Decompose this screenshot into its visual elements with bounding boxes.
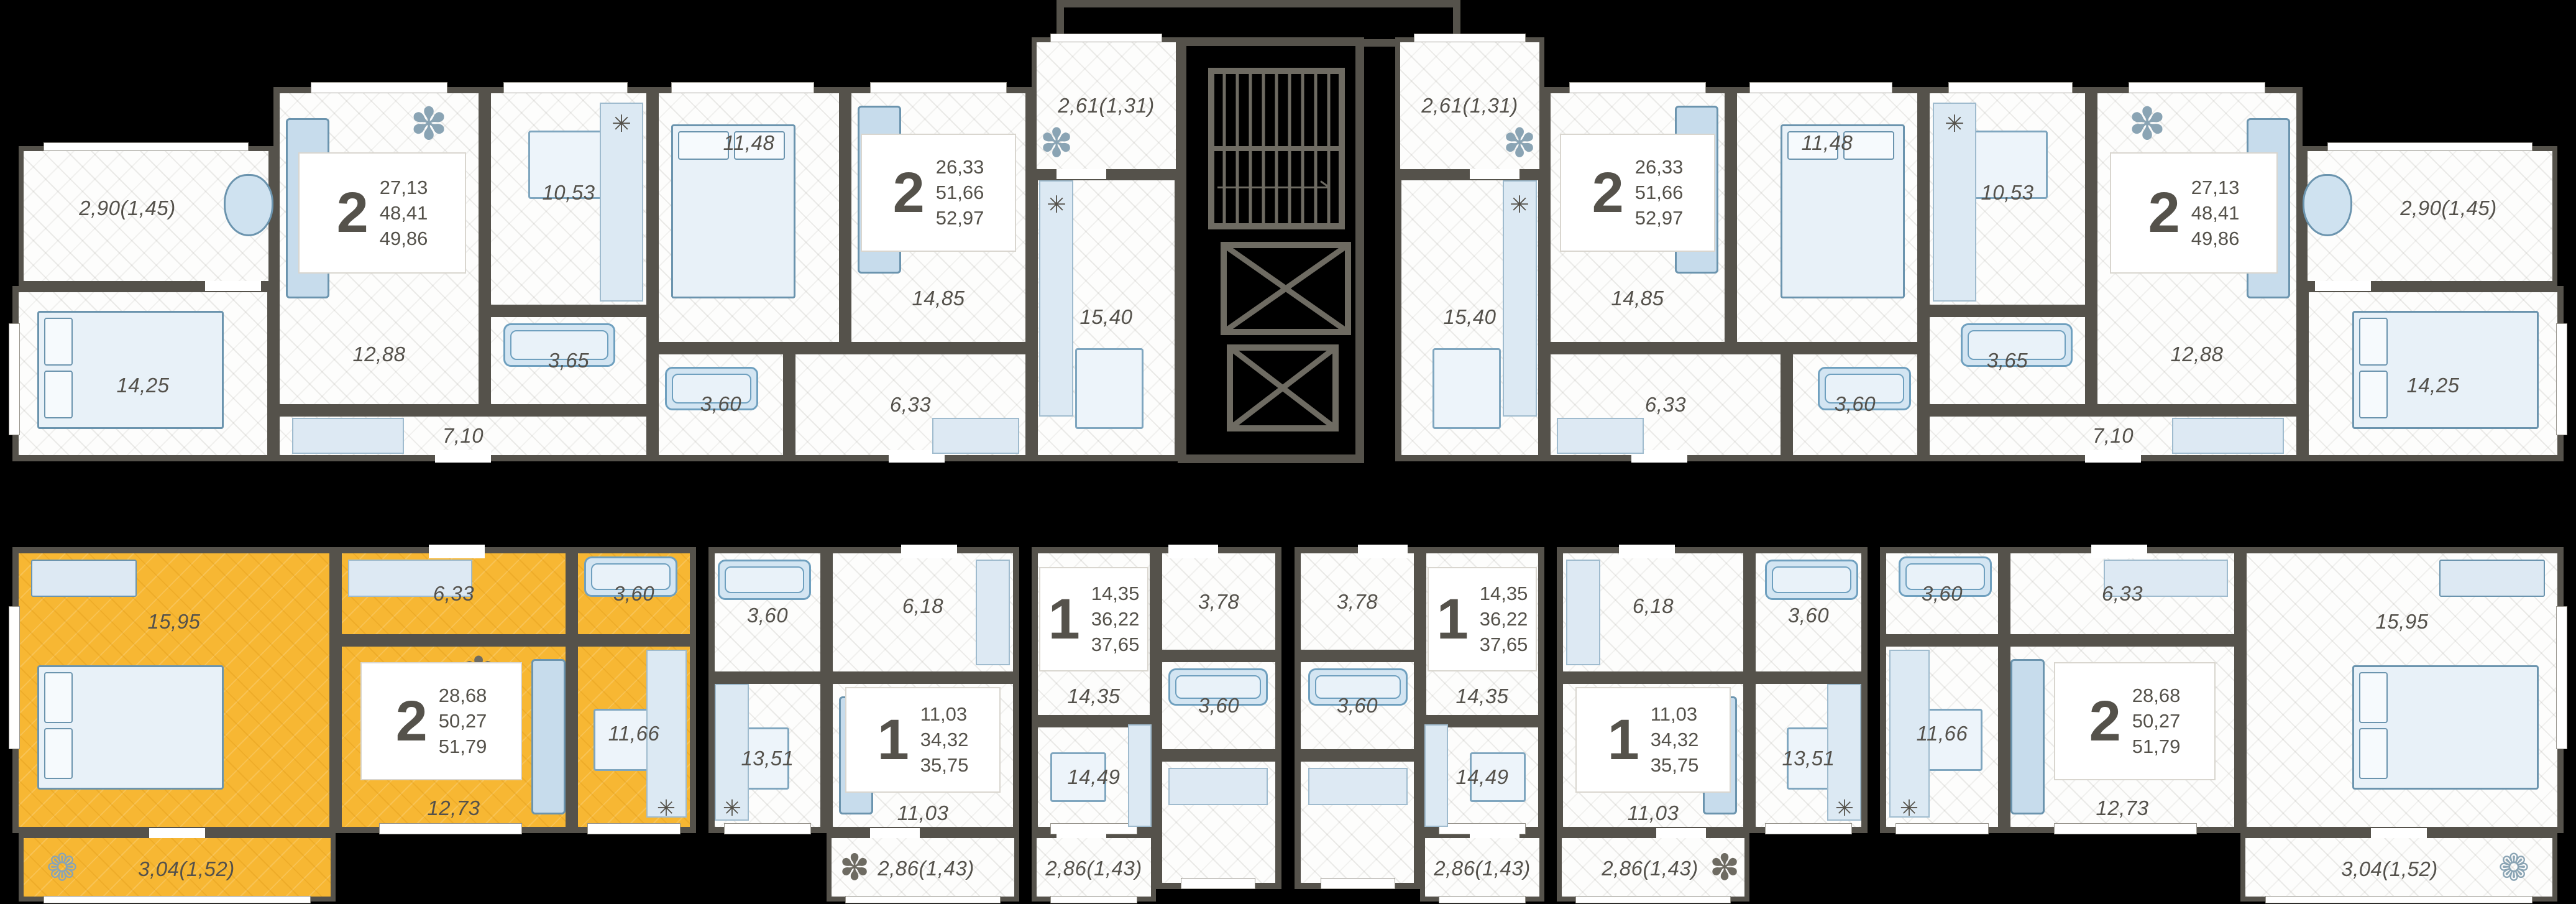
unit-area-value: 26,33 xyxy=(936,156,984,178)
plant-icon: ✽ xyxy=(1710,850,1740,886)
fridge-icon: ✳ xyxy=(657,797,676,819)
room-area-label: 2,90(1,45) xyxy=(79,196,175,220)
door-opening[interactable] xyxy=(435,450,491,463)
room-area-label: 6,18 xyxy=(902,594,943,618)
door-opening[interactable] xyxy=(1057,169,1106,179)
unit-rooms-count: 2 xyxy=(2089,697,2121,745)
unit-area-value: 34,32 xyxy=(1651,729,1699,751)
unit-area-value: 52,97 xyxy=(936,207,984,229)
window xyxy=(2556,323,2567,435)
ward-furniture xyxy=(976,560,1010,665)
chair-furniture xyxy=(224,174,273,236)
unit-area-value: 35,75 xyxy=(920,754,969,777)
core-drawing xyxy=(1186,46,1373,472)
unit-area-value: 28,68 xyxy=(439,685,487,707)
room-area-label: 7,10 xyxy=(2092,424,2134,448)
sofa-furniture xyxy=(2010,659,2045,814)
unit-rooms-count: 1 xyxy=(878,716,909,764)
unit-info-box: 111,0334,3235,75 xyxy=(1575,687,1731,793)
unit-info-box: 226,3351,6652,97 xyxy=(861,134,1016,252)
room-area-label: 3,78 xyxy=(1337,590,1378,614)
window xyxy=(379,823,522,834)
table-furniture xyxy=(1075,348,1144,429)
unit-info-box: 226,3351,6652,97 xyxy=(1560,134,1715,252)
window xyxy=(1569,82,1706,93)
unit-area-value: 52,97 xyxy=(1635,207,1684,229)
room-area-label: 11,03 xyxy=(1628,801,1679,825)
window xyxy=(1321,878,1395,889)
room-area-label: 12,73 xyxy=(427,796,480,820)
window xyxy=(1765,823,1852,834)
unit-area-value: 48,41 xyxy=(380,202,428,224)
room-area-label: 14,25 xyxy=(2406,374,2459,397)
unit-area-value: 51,79 xyxy=(439,736,487,758)
tub-furniture xyxy=(718,560,811,600)
door-opening[interactable] xyxy=(2085,450,2141,463)
unit-info-box: 114,3536,2237,65 xyxy=(1039,567,1148,671)
room-area-label: 2,61(1,31) xyxy=(1421,94,1518,118)
room-area-label: 11,66 xyxy=(1917,722,1968,745)
ward-furniture xyxy=(2172,418,2284,454)
room-area-label: 15,40 xyxy=(1079,305,1132,329)
room-area-label: 11,03 xyxy=(897,801,949,825)
vase-icon: ❁ xyxy=(2498,849,2529,887)
unit-area-value: 27,13 xyxy=(2191,177,2240,199)
window xyxy=(9,323,20,435)
window xyxy=(2556,606,2567,749)
room-area-label: 6,18 xyxy=(1633,594,1674,618)
unit-area-value: 51,79 xyxy=(2132,736,2181,758)
room-area-label: 13,51 xyxy=(741,747,794,770)
desk-furniture xyxy=(2439,560,2545,597)
room-area-label: 3,04(1,52) xyxy=(138,857,234,881)
window xyxy=(870,82,1007,93)
fridge-icon: ✳ xyxy=(1900,797,1918,819)
plant-icon: ✽ xyxy=(2129,102,2166,147)
room-area-label: 3,78 xyxy=(1198,590,1239,614)
unit-area-value: 28,68 xyxy=(2132,685,2181,707)
tub-furniture xyxy=(1765,560,1858,600)
room-area-label: 12,88 xyxy=(2170,343,2223,366)
room-area-label: 12,73 xyxy=(2096,796,2148,820)
door-opening[interactable] xyxy=(2371,828,2427,838)
unit-info-box: 227,1348,4149,86 xyxy=(298,152,466,274)
fridge-icon: ✳ xyxy=(1835,797,1854,819)
room-area-label: 11,66 xyxy=(608,722,660,745)
door-opening[interactable] xyxy=(1470,828,1519,838)
unit-area-value: 49,86 xyxy=(2191,228,2240,250)
window xyxy=(1181,878,1255,889)
room-area-label: 3,65 xyxy=(548,349,589,372)
window xyxy=(44,142,249,151)
unit-areas: 11,0334,3235,75 xyxy=(920,703,969,777)
room-area-label: 14,85 xyxy=(1611,287,1664,310)
door-opening[interactable] xyxy=(870,828,920,838)
unit-area-value: 26,33 xyxy=(1635,156,1684,178)
room-area-label: 2,86(1,43) xyxy=(1045,857,1142,880)
unit-areas: 11,0334,3235,75 xyxy=(1651,703,1699,777)
unit-area-value: 51,66 xyxy=(936,182,984,204)
door-opening[interactable] xyxy=(1358,545,1408,558)
door-opening[interactable] xyxy=(1057,828,1106,838)
door-opening[interactable] xyxy=(901,545,957,558)
unit-areas: 28,6850,2751,79 xyxy=(2132,685,2181,758)
door-opening[interactable] xyxy=(1619,545,1675,558)
plant-icon: ✽ xyxy=(840,850,870,886)
room-area-label: 3,60 xyxy=(613,582,654,606)
sofa-furniture xyxy=(531,659,566,814)
room-area-label: 3,60 xyxy=(747,604,788,627)
unit-rooms-count: 2 xyxy=(1592,168,1624,217)
window xyxy=(2327,142,2532,151)
desk-furniture xyxy=(31,560,137,597)
room-area-label: 15,95 xyxy=(147,610,200,634)
ward-furniture xyxy=(1557,418,1644,454)
room-area-label: 10,53 xyxy=(542,181,595,205)
room-area-label: 14,35 xyxy=(1067,685,1120,708)
room-area-label: 3,60 xyxy=(1198,694,1239,717)
room-area-label: 3,60 xyxy=(700,392,741,416)
room-area-label: 12,88 xyxy=(352,343,405,366)
door-opening[interactable] xyxy=(429,545,485,558)
window xyxy=(1749,82,1892,93)
unit-areas: 14,3536,2237,65 xyxy=(1480,583,1528,656)
window xyxy=(1050,34,1162,42)
unit-rooms-count: 1 xyxy=(1608,716,1639,764)
unit-area-value: 36,22 xyxy=(1091,608,1140,630)
room-area-label: 3,60 xyxy=(1337,694,1378,717)
vase-icon: ❁ xyxy=(47,849,78,887)
ward-furniture xyxy=(1168,768,1268,805)
door-opening[interactable] xyxy=(2315,281,2371,291)
bed-furniture xyxy=(2352,311,2539,429)
unit-areas: 26,3351,6652,97 xyxy=(1635,156,1684,229)
ward-furniture xyxy=(932,418,1019,454)
bed-furniture xyxy=(2352,665,2539,790)
room-area-label: 11,48 xyxy=(1802,131,1853,155)
room-area-label: 13,51 xyxy=(1782,747,1835,770)
unit-area-value: 51,66 xyxy=(1635,182,1684,204)
room-area-label: 3,60 xyxy=(1788,604,1829,627)
window xyxy=(587,823,681,834)
door-opening[interactable] xyxy=(1656,828,1706,838)
counter-furniture xyxy=(1128,724,1152,827)
room-area-label: 2,86(1,43) xyxy=(1434,857,1530,880)
door-opening[interactable] xyxy=(1470,169,1519,179)
room-area-label: 6,33 xyxy=(890,393,931,417)
fridge-icon: ✳ xyxy=(612,113,631,136)
window xyxy=(671,82,814,93)
window xyxy=(1414,34,1526,42)
floor-plan-canvas: ✽✽✽✽✽✽✽❁❁✳✳✳✳✳✳✳✳ 2,90(1,45)14,2512,8810… xyxy=(0,0,2576,904)
fridge-icon: ✳ xyxy=(1945,113,1964,136)
room-area-label: 14,25 xyxy=(116,374,169,397)
unit-info-box: 111,0334,3235,75 xyxy=(845,687,1001,793)
ward-furniture xyxy=(292,418,404,454)
unit-area-value: 36,22 xyxy=(1480,608,1528,630)
unit-areas: 26,3351,6652,97 xyxy=(936,156,984,229)
unit-area-value: 50,27 xyxy=(439,710,487,732)
room-area-label: 14,49 xyxy=(1455,765,1508,789)
stair-elevator-core xyxy=(1178,37,1364,463)
window xyxy=(2054,823,2197,834)
window xyxy=(724,823,811,834)
room-area-label: 6,33 xyxy=(433,582,474,606)
window xyxy=(845,896,1001,903)
window xyxy=(1948,82,2073,93)
room-area-label: 2,86(1,43) xyxy=(878,857,974,880)
ward-furniture xyxy=(1308,768,1408,805)
unit-area-value: 50,27 xyxy=(2132,710,2181,732)
unit-area-value: 35,75 xyxy=(1651,754,1699,777)
room-area-label: 2,90(1,45) xyxy=(2400,196,2496,220)
window xyxy=(2129,82,2265,93)
room-area-label: 15,40 xyxy=(1443,305,1496,329)
unit-rooms-count: 1 xyxy=(1048,595,1080,643)
unit-area-value: 49,86 xyxy=(380,228,428,250)
window xyxy=(44,896,311,903)
unit-area-value: 37,65 xyxy=(1091,634,1140,656)
unit-areas: 27,1348,4149,86 xyxy=(380,177,428,250)
unit-rooms-count: 2 xyxy=(396,697,428,745)
room-area-label: 3,04(1,52) xyxy=(2341,857,2437,881)
unit-areas: 28,6850,2751,79 xyxy=(439,685,487,758)
room-area-label: 14,35 xyxy=(1455,685,1508,708)
room-area-label: 11,48 xyxy=(723,131,775,155)
bed-furniture xyxy=(37,311,224,429)
ward-furniture xyxy=(1566,560,1600,665)
unit-area-value: 27,13 xyxy=(380,177,428,199)
fridge-icon: ✳ xyxy=(1510,193,1529,217)
unit-area-value: 34,32 xyxy=(920,729,969,751)
bed-furniture xyxy=(37,665,224,790)
unit-area-value: 14,35 xyxy=(1480,583,1528,605)
fridge-icon: ✳ xyxy=(1047,193,1066,217)
window xyxy=(1439,896,1526,903)
unit-info-box: 227,1348,4149,86 xyxy=(2110,152,2278,274)
window xyxy=(503,82,628,93)
unit-rooms-count: 1 xyxy=(1437,595,1469,643)
unit-info-box: 114,3536,2237,65 xyxy=(1428,567,1537,671)
door-opening[interactable] xyxy=(205,281,261,291)
unit-info-box: 228,6850,2751,79 xyxy=(2054,662,2216,780)
unit-areas: 14,3536,2237,65 xyxy=(1091,583,1140,656)
room-area-label: 2,86(1,43) xyxy=(1602,857,1698,880)
room-area-label: 3,60 xyxy=(1835,392,1876,416)
window xyxy=(311,82,447,93)
room-area-label: 6,33 xyxy=(2102,582,2143,606)
room-area-label: 7,10 xyxy=(442,424,484,448)
plant-icon: ✽ xyxy=(410,102,447,147)
window xyxy=(2265,896,2532,903)
unit-rooms-count: 2 xyxy=(2148,188,2180,237)
fridge-icon: ✳ xyxy=(723,797,741,819)
room-area-label: 14,85 xyxy=(912,287,965,310)
unit-area-value: 11,03 xyxy=(1651,703,1699,726)
room-area-label: 3,60 xyxy=(1922,582,1963,606)
unit-area-value: 11,03 xyxy=(920,703,969,726)
unit-rooms-count: 2 xyxy=(893,168,925,217)
window xyxy=(1050,896,1137,903)
room-area-label: 3,65 xyxy=(1987,349,2028,372)
table-furniture xyxy=(1432,348,1501,429)
window xyxy=(1575,896,1731,903)
door-opening[interactable] xyxy=(149,828,205,838)
unit-area-value: 37,65 xyxy=(1480,634,1528,656)
unit-area-value: 48,41 xyxy=(2191,202,2240,224)
window xyxy=(9,606,20,749)
unit-areas: 27,1348,4149,86 xyxy=(2191,177,2240,250)
plant-icon: ✽ xyxy=(1040,123,1073,163)
room-area-label: 14,49 xyxy=(1067,765,1120,789)
room-area-label: 15,95 xyxy=(2375,610,2428,634)
door-opening[interactable] xyxy=(2091,545,2147,558)
room-area-label: 10,53 xyxy=(1981,181,2033,205)
window xyxy=(1895,823,1989,834)
door-opening[interactable] xyxy=(1168,545,1218,558)
chair-furniture xyxy=(2303,174,2352,236)
unit-rooms-count: 2 xyxy=(337,188,369,237)
plant-icon: ✽ xyxy=(1503,123,1536,163)
room-area-label: 2,61(1,31) xyxy=(1058,94,1154,118)
unit-info-box[interactable]: 228,6850,2751,79 xyxy=(360,662,522,780)
counter-furniture xyxy=(1424,724,1448,827)
unit-area-value: 14,35 xyxy=(1091,583,1140,605)
room-area-label: 6,33 xyxy=(1645,393,1686,417)
